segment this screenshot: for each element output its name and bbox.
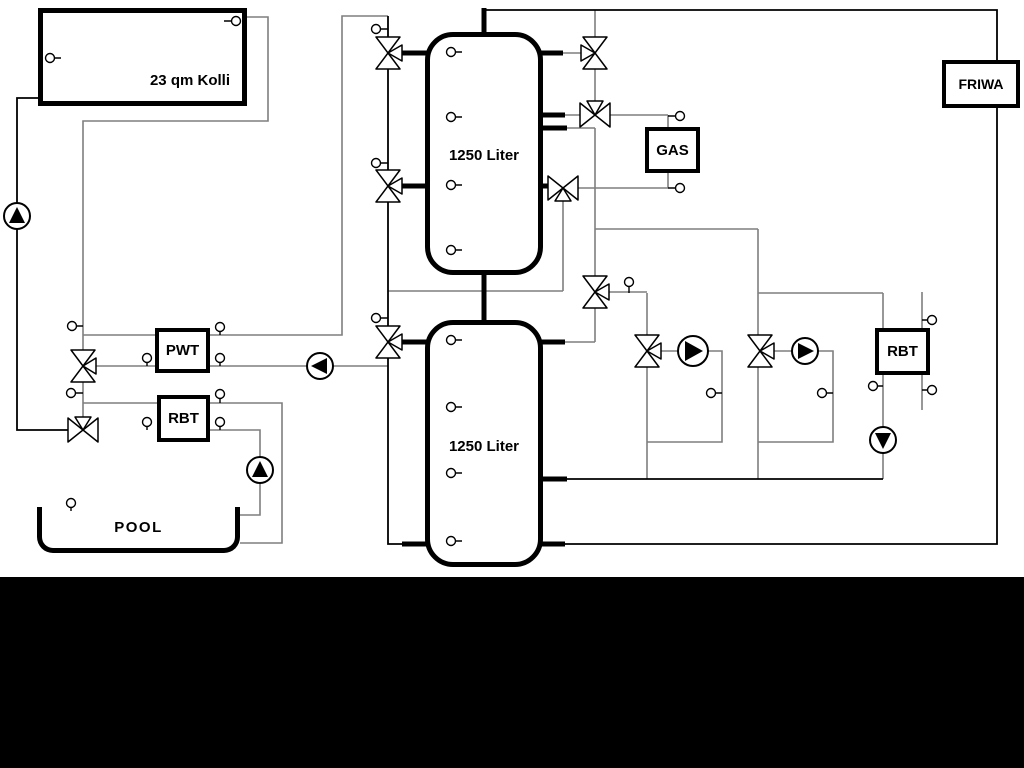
valve-tank2-top-icon xyxy=(376,326,402,358)
tank-top-label: 1250 Liter xyxy=(430,147,538,164)
fresh-water-station-box: FRIWA xyxy=(942,60,1020,108)
gas-boiler-box: GAS xyxy=(645,127,700,173)
gas-boiler-label: GAS xyxy=(656,142,689,159)
sensor-icon xyxy=(143,354,152,363)
pwt-heat-exchanger-box: PWT xyxy=(155,328,210,373)
sensor-icon xyxy=(68,322,77,331)
sensor-icon xyxy=(707,389,716,398)
pipe-solar-flow xyxy=(17,98,68,430)
valve-solar-upper-icon xyxy=(71,350,96,382)
solar-collector-box: 23 qm Kolli xyxy=(38,8,247,106)
sensor-icon xyxy=(67,389,76,398)
sensor-icon xyxy=(143,418,152,427)
pipe-dhw-friwa-loop xyxy=(484,10,997,544)
pool-label: POOL xyxy=(114,519,163,536)
pump-pool-icon xyxy=(247,457,273,483)
pipe-heating-group1 xyxy=(609,292,722,479)
pipe-layer-valve-chain xyxy=(388,16,402,544)
sensor-icon xyxy=(869,382,878,391)
sensor-icon xyxy=(216,418,225,427)
rbt-right-heat-exchanger-box: RBT xyxy=(875,328,930,375)
sensor-icon xyxy=(928,386,937,395)
sensor-icon xyxy=(676,184,685,193)
tank-bottom-label: 1250 Liter xyxy=(430,438,538,455)
pump-pwt-icon xyxy=(307,353,333,379)
valve-solar-pool-icon xyxy=(68,417,98,442)
rbt-pool-heat-exchanger-box: RBT xyxy=(157,395,210,442)
sensor-icon xyxy=(372,314,381,323)
rbt-right-label: RBT xyxy=(887,343,918,360)
pump-group2-icon xyxy=(792,338,818,364)
sensor-icon xyxy=(928,316,937,325)
footer-band xyxy=(0,577,1024,768)
pump-group1-icon xyxy=(678,336,708,366)
pool-basin: POOL xyxy=(37,507,240,553)
sensor-icon xyxy=(676,112,685,121)
valve-gas-top-icon xyxy=(581,37,607,69)
sensor-icon xyxy=(216,323,225,332)
schematic-canvas: 23 qm Kolli 1250 Liter 1250 Liter GAS FR… xyxy=(0,0,1024,768)
sensor-icon xyxy=(372,159,381,168)
pwt-label: PWT xyxy=(166,342,199,359)
collector-label: 23 qm Kolli xyxy=(150,72,230,89)
friwa-label: FRIWA xyxy=(958,76,1003,92)
pump-rbt2-icon xyxy=(870,427,896,453)
pump-solar-icon xyxy=(4,203,30,229)
valve-heating-supply-icon xyxy=(583,276,609,308)
valve-gas-supply-icon xyxy=(580,101,610,127)
buffer-tank-top: 1250 Liter xyxy=(425,32,543,275)
sensor-icon xyxy=(216,354,225,363)
valve-heating-group2-icon xyxy=(748,335,774,367)
valve-tank1-mid-icon xyxy=(376,170,402,202)
pipe-heating-group2 xyxy=(758,351,833,479)
buffer-tank-bottom: 1250 Liter xyxy=(425,320,543,567)
valve-gas-return-icon xyxy=(548,176,578,201)
valve-heating-group1-icon xyxy=(635,335,661,367)
sensor-icon xyxy=(372,25,381,34)
sensor-icon xyxy=(818,389,827,398)
pipe-tank2-top-return xyxy=(565,308,595,342)
valve-tank1-top-icon xyxy=(376,37,402,69)
rbt-pool-label: RBT xyxy=(168,410,199,427)
sensor-icon xyxy=(216,390,225,399)
pipe-heating-supply xyxy=(567,128,883,335)
sensor-icon xyxy=(625,278,634,287)
